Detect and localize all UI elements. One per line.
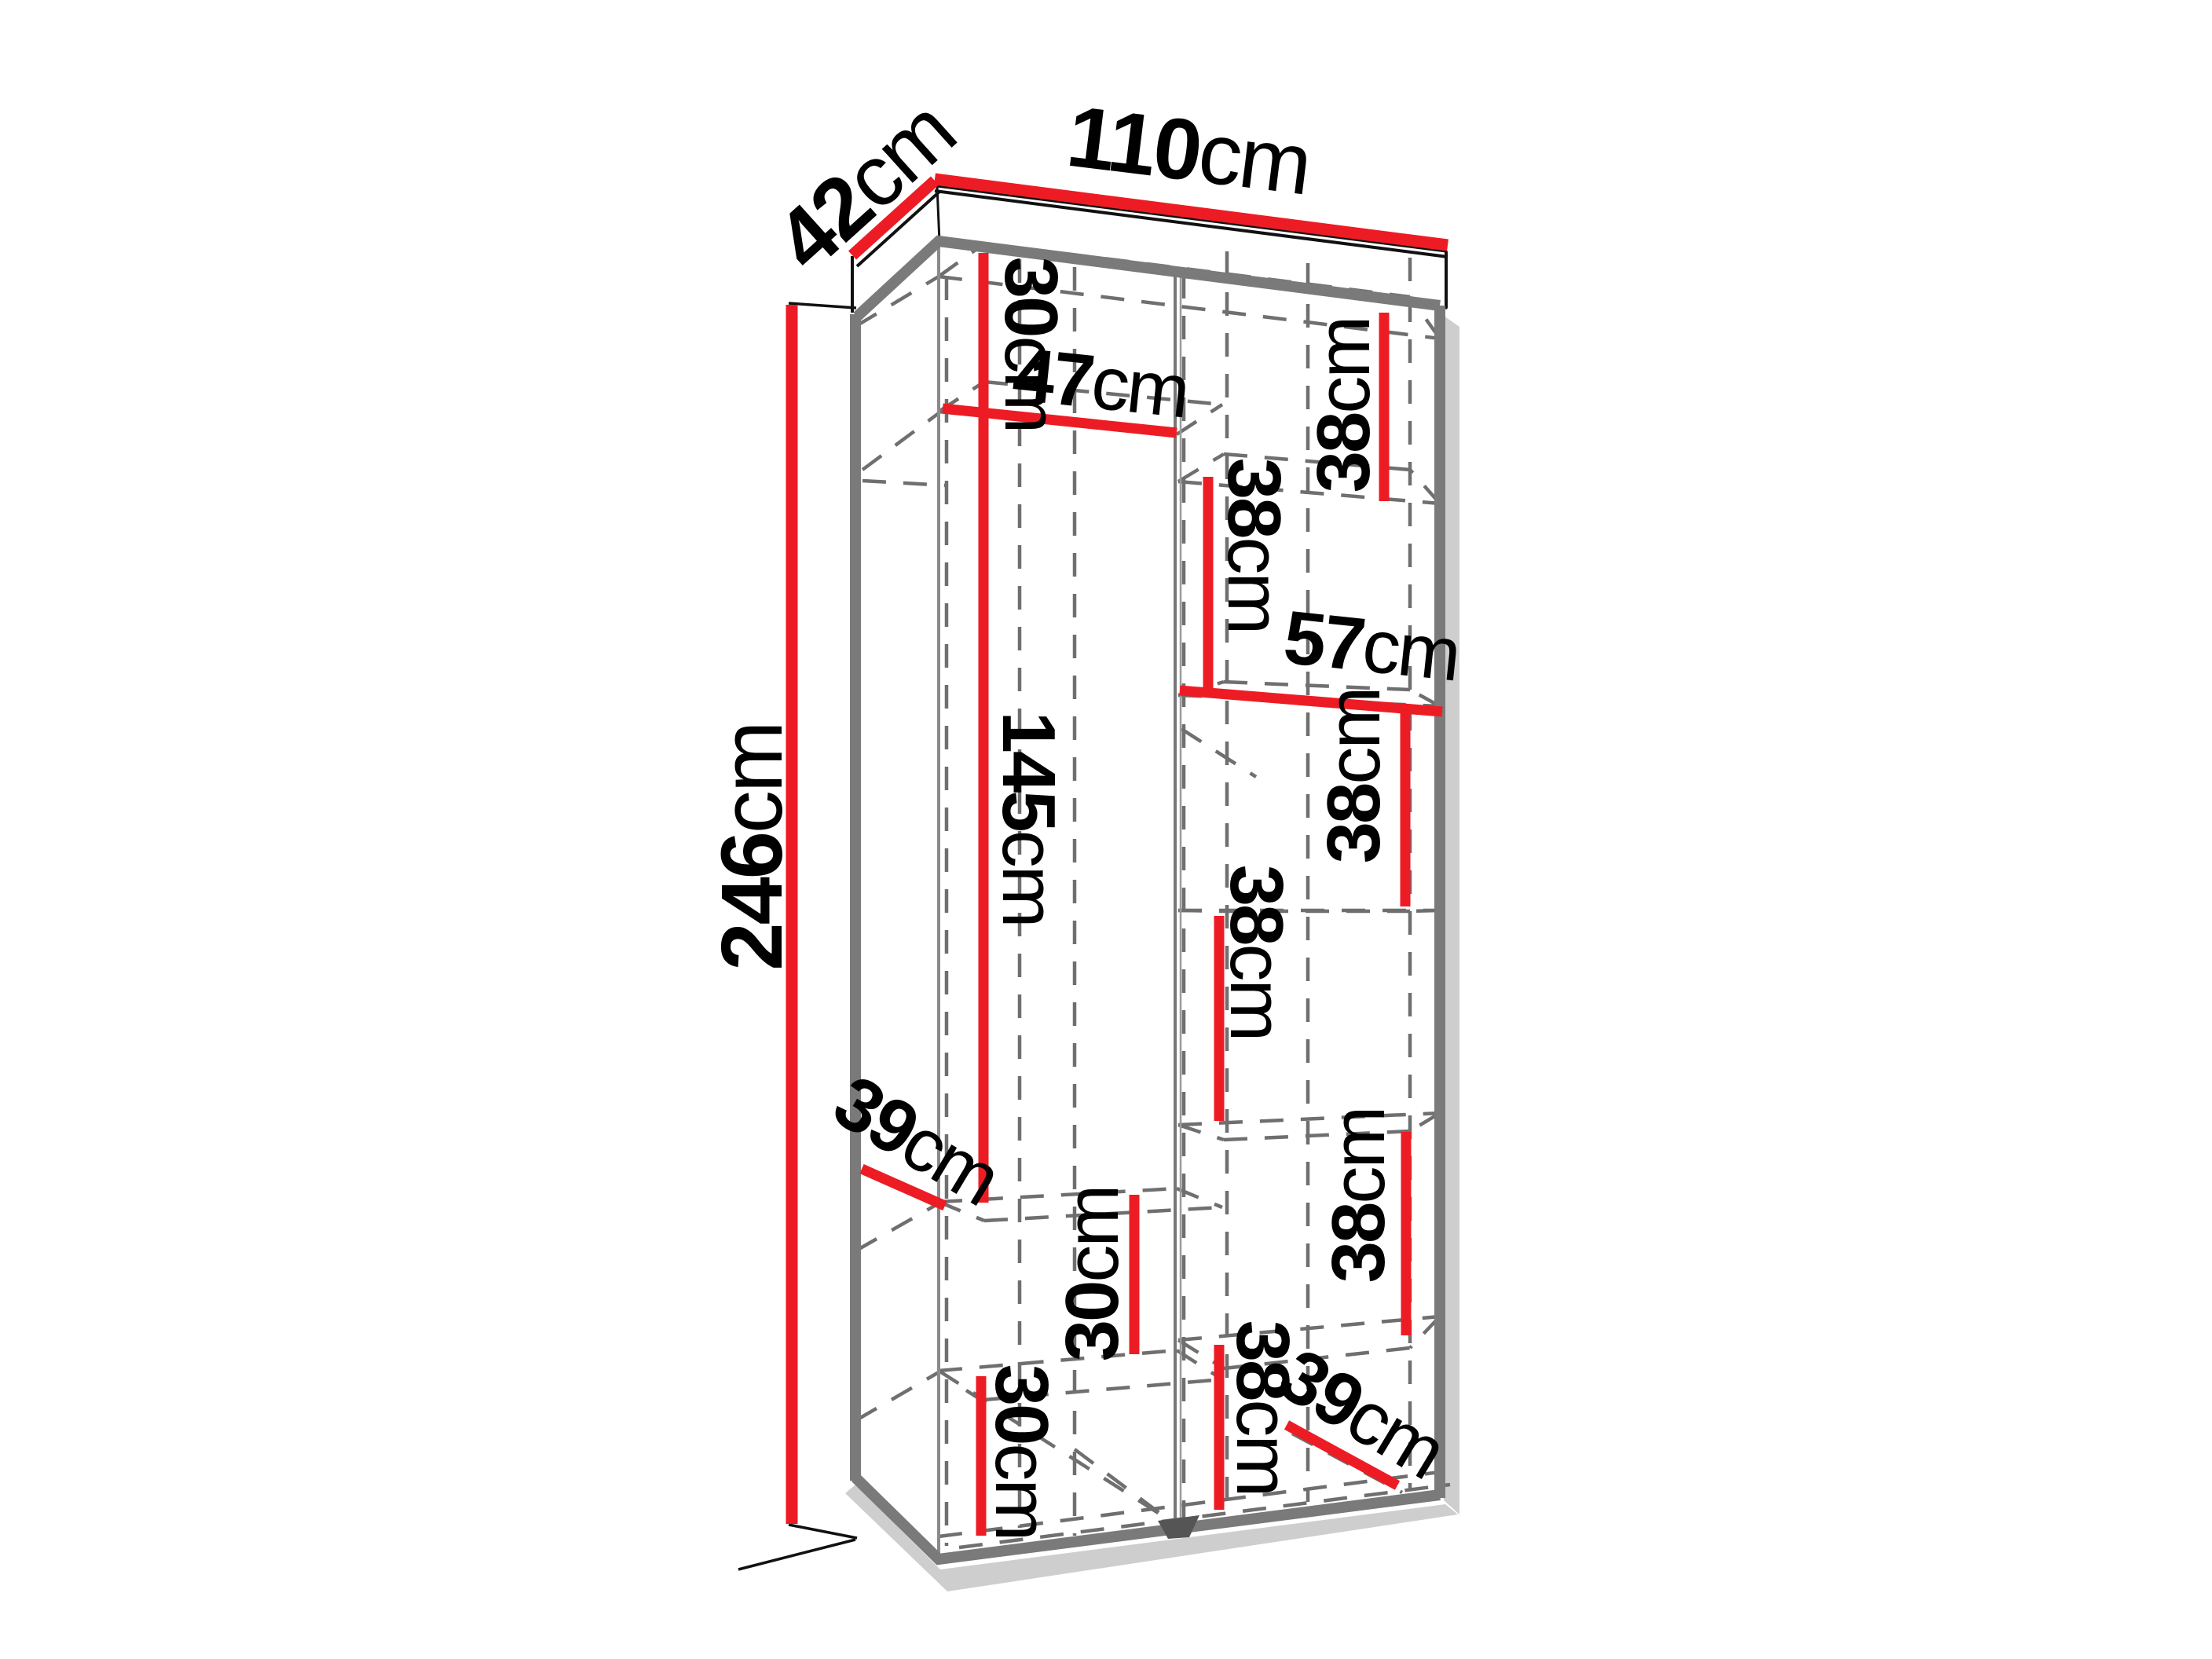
dim-label-38-2: 38cm xyxy=(1212,458,1296,633)
dim-label-30-bottom: 30cm xyxy=(980,1364,1064,1540)
dim-label-height-246: 246cm xyxy=(704,723,800,970)
dim-label-145: 145cm xyxy=(987,711,1071,925)
diagram-canvas: 42cm 110cm 246cm 30cm 47cm 145cm 39cm 30… xyxy=(0,0,2212,1659)
dim-label-38-3: 38cm xyxy=(1312,689,1396,864)
height-tick-top xyxy=(789,303,856,308)
side-panel xyxy=(855,241,939,1561)
shadow-right xyxy=(1444,316,1459,1514)
wardrobe-dimension-diagram: 42cm 110cm 246cm 30cm 47cm 145cm 39cm 30… xyxy=(0,0,2212,1659)
floor-line xyxy=(738,1540,855,1569)
height-tick-bottom xyxy=(789,1525,857,1538)
dim-label-38-5: 38cm xyxy=(1317,1108,1401,1284)
dim-label-38-1: 38cm xyxy=(1302,318,1386,493)
dim-label-30-mid: 30cm xyxy=(1050,1187,1134,1362)
dim-label-38-4: 38cm xyxy=(1214,865,1298,1040)
